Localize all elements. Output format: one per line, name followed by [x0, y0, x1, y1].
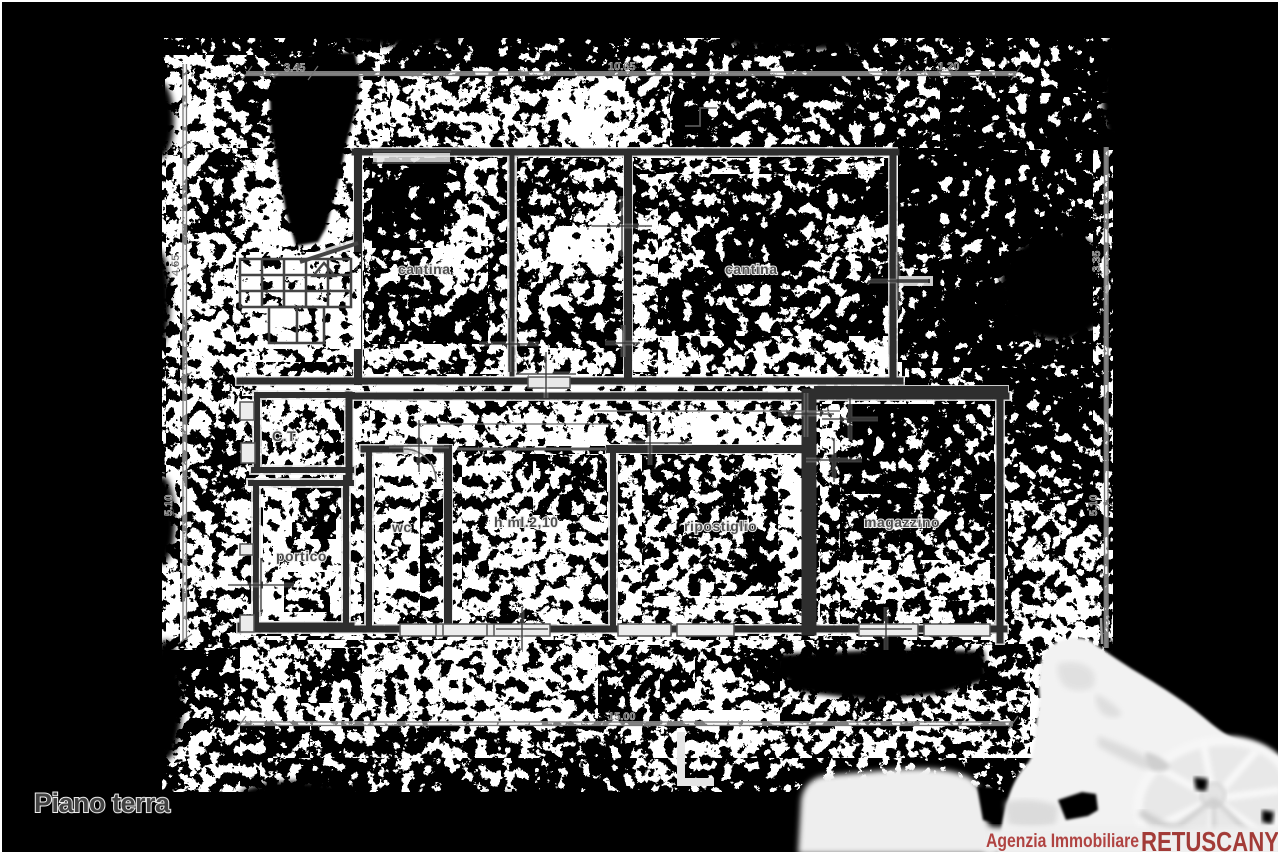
- svg-text:3.35: 3.35: [1091, 251, 1103, 272]
- svg-text:cantina: cantina: [725, 261, 778, 277]
- svg-text:3.45: 3.45: [284, 62, 305, 74]
- svg-text:ripostiglio: ripostiglio: [684, 518, 757, 534]
- svg-text:C.T.: C.T.: [272, 428, 299, 444]
- svg-text:Agenzia Immobiliare: Agenzia Immobiliare: [986, 831, 1139, 852]
- svg-text:cantina: cantina: [398, 261, 451, 277]
- svg-text:15.00: 15.00: [608, 711, 636, 723]
- svg-text:5.10: 5.10: [1088, 495, 1100, 516]
- svg-text:4.55: 4.55: [170, 255, 182, 276]
- svg-text:1.20: 1.20: [938, 61, 959, 73]
- svg-text:magazzino: magazzino: [864, 514, 940, 530]
- svg-text:10.65: 10.65: [608, 61, 636, 73]
- svg-text:wc: wc: [391, 519, 412, 535]
- svg-text:RETUSCANY: RETUSCANY: [1141, 826, 1279, 854]
- svg-text:Piano terra: Piano terra: [34, 788, 171, 818]
- svg-text:portico: portico: [276, 548, 327, 564]
- svg-text:h ml.2,10: h ml.2,10: [494, 514, 558, 530]
- svg-text:5.10: 5.10: [163, 495, 175, 516]
